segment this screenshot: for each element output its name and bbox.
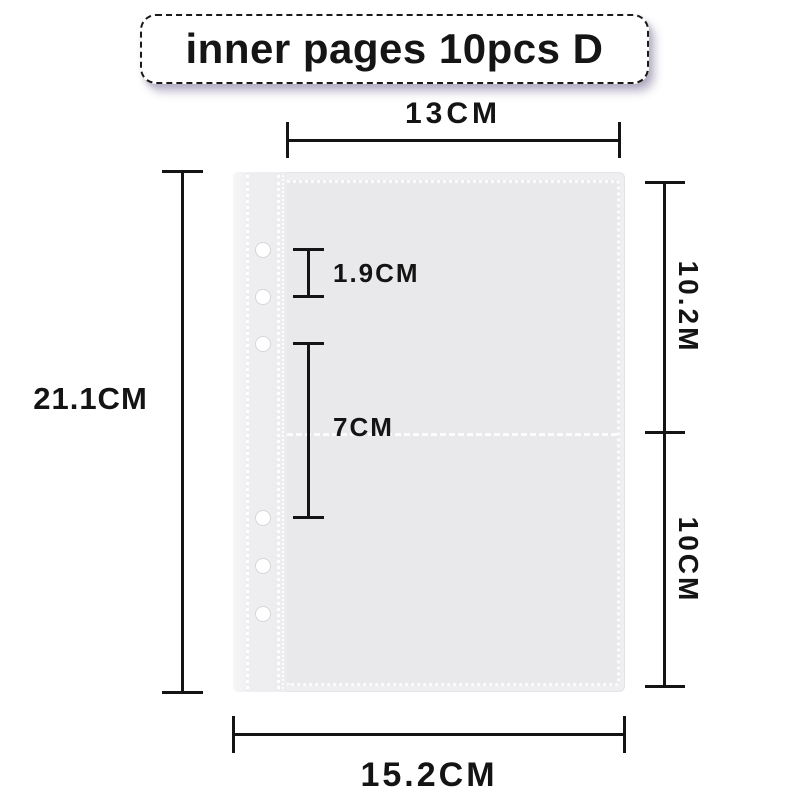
dim-label-hole-spacing: 1.9CM [333, 258, 420, 289]
dim-line-left [181, 171, 184, 693]
stitch-line [246, 175, 249, 689]
dim-label-hole-gap: 7CM [333, 412, 394, 443]
binder-hole [256, 607, 270, 621]
dim-label-top-width: 13CM [303, 97, 603, 131]
binder-edge-strip [233, 172, 287, 692]
stitch-line [277, 175, 280, 689]
dim-label-lower-pocket-height: 10CM [668, 500, 708, 620]
dim-tick [293, 295, 324, 298]
dim-tick [293, 248, 324, 251]
dim-tick [162, 170, 203, 173]
stitch-line [282, 175, 284, 689]
dim-line-bottom [233, 733, 625, 736]
dim-tick [293, 342, 324, 345]
dim-tick [162, 691, 203, 694]
binder-hole [256, 243, 270, 257]
dim-tick [623, 716, 626, 753]
dim-line-top [287, 139, 620, 142]
title-banner: inner pages 10pcs D [140, 14, 649, 84]
sleeve-page-image [233, 172, 625, 692]
dim-tick [645, 685, 685, 688]
binder-hole [256, 511, 270, 525]
dim-tick [618, 122, 621, 158]
binder-hole [256, 559, 270, 573]
dim-tick [232, 716, 235, 753]
dim-tick [645, 431, 685, 434]
product-dimension-diagram: inner pages 10pcs D 13CM 21.1CM 1.9CM [0, 0, 800, 800]
dim-label-upper-pocket-height: 10.2M [668, 247, 708, 367]
dim-line-hole-gap [307, 344, 310, 518]
dim-line-hole-spacing [307, 250, 310, 297]
dim-tick [293, 516, 324, 519]
binder-hole [256, 290, 270, 304]
title-text: inner pages 10pcs D [186, 25, 604, 73]
dim-line-right [663, 182, 666, 687]
dim-tick [286, 122, 289, 158]
dim-label-page-width: 15.2CM [279, 756, 579, 795]
dim-tick [645, 181, 685, 184]
binder-hole [256, 337, 270, 351]
dim-label-page-height: 21.1CM [18, 381, 163, 417]
